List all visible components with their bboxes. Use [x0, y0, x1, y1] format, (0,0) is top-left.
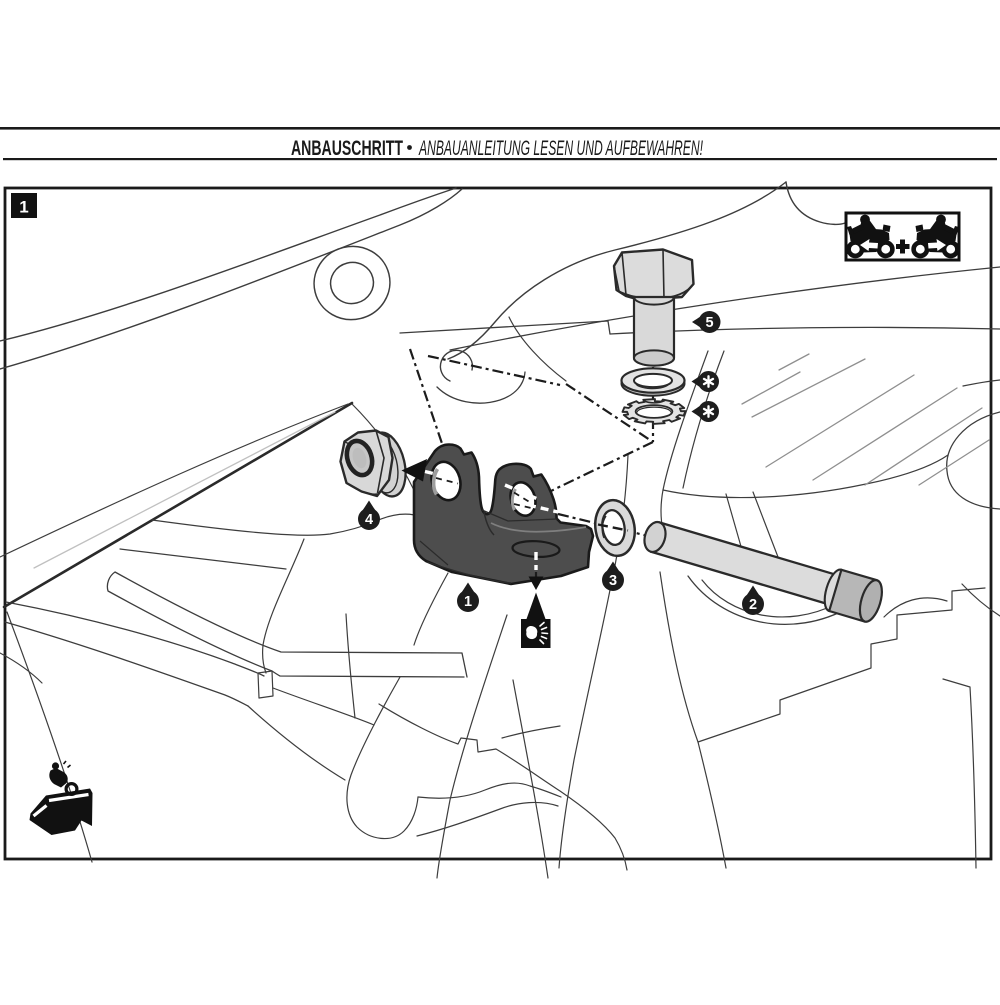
svg-text:1: 1	[19, 198, 28, 217]
svg-text:2: 2	[749, 597, 757, 613]
svg-text:ANBAUSCHRITT: ANBAUSCHRITT	[291, 136, 403, 160]
svg-text:ANBAUANLEITUNG LESEN UND AUFBE: ANBAUANLEITUNG LESEN UND AUFBEWAHREN!	[418, 136, 703, 160]
svg-text:4: 4	[365, 512, 373, 528]
svg-text:5: 5	[705, 315, 713, 331]
svg-text:1: 1	[464, 594, 472, 610]
svg-text:3: 3	[609, 573, 617, 589]
